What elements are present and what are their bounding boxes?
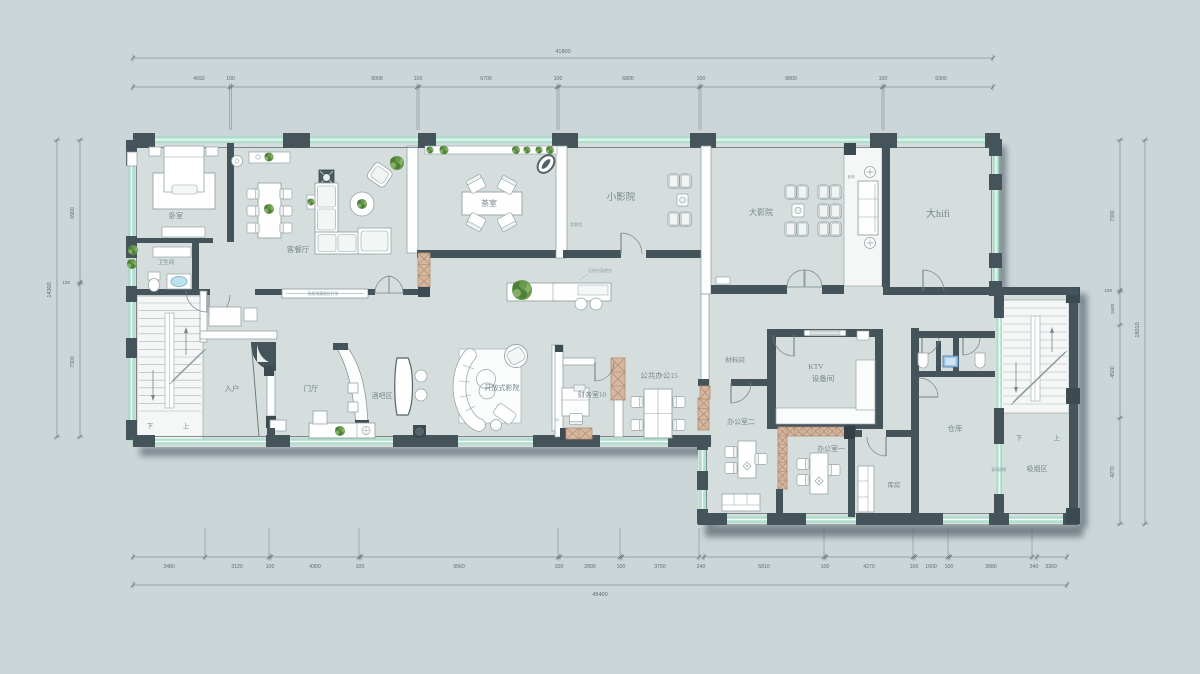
svg-text:库房: 库房 — [888, 480, 901, 489]
svg-text:100: 100 — [879, 76, 888, 82]
svg-text:1600: 1600 — [925, 564, 937, 570]
svg-text:音响: 音响 — [847, 174, 855, 179]
svg-text:100: 100 — [1104, 288, 1112, 293]
svg-text:大hifi: 大hifi — [926, 207, 950, 220]
svg-text:5300: 5300 — [935, 76, 947, 82]
svg-text:入户: 入户 — [225, 383, 240, 393]
svg-text:门厅: 门厅 — [304, 384, 319, 393]
svg-text:5810: 5810 — [758, 564, 770, 570]
svg-text:下: 下 — [1016, 434, 1023, 442]
svg-text:3980: 3980 — [985, 564, 997, 570]
svg-text:2890: 2890 — [584, 564, 596, 570]
svg-text:财务室10: 财务室10 — [578, 390, 606, 399]
svg-text:大影院: 大影院 — [749, 207, 773, 217]
svg-text:100: 100 — [62, 280, 70, 285]
svg-text:4300: 4300 — [309, 564, 321, 570]
svg-text:办公室一: 办公室一 — [817, 444, 845, 453]
svg-text:玻璃隔断: 玻璃隔断 — [991, 467, 1006, 472]
svg-text:14300: 14300 — [47, 282, 53, 297]
svg-text:23: 23 — [555, 418, 559, 422]
svg-text:卧室: 卧室 — [169, 211, 183, 220]
svg-text:3480: 3480 — [163, 564, 175, 570]
svg-text:100: 100 — [945, 564, 954, 570]
svg-text:设备间: 设备间 — [812, 373, 835, 383]
svg-text:下: 下 — [147, 422, 154, 430]
svg-text:100: 100 — [266, 564, 275, 570]
svg-text:酒吧区: 酒吧区 — [372, 392, 393, 400]
svg-text:4692: 4692 — [193, 76, 205, 82]
svg-text:100: 100 — [356, 564, 365, 570]
svg-text:3750: 3750 — [654, 564, 666, 570]
svg-text:100: 100 — [226, 76, 235, 82]
svg-text:仓库: 仓库 — [948, 423, 963, 433]
svg-text:240: 240 — [1030, 564, 1039, 570]
svg-text:吸烟区: 吸烟区 — [1027, 464, 1048, 473]
svg-text:8800: 8800 — [785, 76, 797, 82]
svg-text:办公室二: 办公室二 — [727, 417, 755, 426]
svg-text:鞋柜暗藏感应灯带: 鞋柜暗藏感应灯带 — [308, 291, 339, 296]
svg-text:KTV: KTV — [808, 362, 824, 371]
svg-text:7300: 7300 — [70, 356, 76, 368]
svg-text:3120: 3120 — [231, 564, 243, 570]
svg-text:18010: 18010 — [1135, 322, 1141, 337]
svg-text:100: 100 — [821, 564, 830, 570]
svg-text:公共办公15: 公共办公15 — [640, 370, 678, 380]
svg-text:茶室: 茶室 — [481, 198, 497, 208]
svg-text:上: 上 — [1054, 433, 1061, 442]
svg-text:3360: 3360 — [1045, 564, 1057, 570]
svg-text:100: 100 — [910, 564, 919, 570]
svg-text:45400: 45400 — [592, 592, 607, 598]
svg-text:卫生间: 卫生间 — [158, 258, 175, 266]
svg-text:石材台面吧台: 石材台面吧台 — [588, 267, 612, 273]
svg-text:4270: 4270 — [863, 564, 875, 570]
svg-text:100: 100 — [414, 76, 423, 82]
svg-text:小影院: 小影院 — [607, 191, 636, 203]
svg-text:9008: 9008 — [371, 76, 383, 82]
svg-text:上: 上 — [183, 421, 190, 430]
svg-text:1600: 1600 — [1110, 303, 1116, 314]
svg-text:100: 100 — [697, 76, 706, 82]
svg-text:41800: 41800 — [555, 49, 570, 55]
svg-text:材料间: 材料间 — [725, 355, 745, 364]
svg-text:100: 100 — [617, 564, 626, 570]
svg-text:7300: 7300 — [1110, 210, 1116, 222]
svg-text:100: 100 — [555, 564, 564, 570]
svg-text:6800: 6800 — [622, 76, 634, 82]
svg-text:开放式影院: 开放式影院 — [485, 383, 520, 392]
svg-text:6900: 6900 — [70, 207, 76, 219]
svg-text:4500: 4500 — [1110, 366, 1116, 378]
svg-text:6700: 6700 — [480, 76, 492, 82]
svg-text:客餐厅: 客餐厅 — [287, 244, 310, 254]
svg-text:240: 240 — [697, 564, 706, 570]
svg-text:4270: 4270 — [1110, 466, 1116, 478]
svg-text:背景墙: 背景墙 — [570, 221, 582, 227]
svg-text:100: 100 — [554, 76, 563, 82]
svg-text:9560: 9560 — [453, 564, 465, 570]
